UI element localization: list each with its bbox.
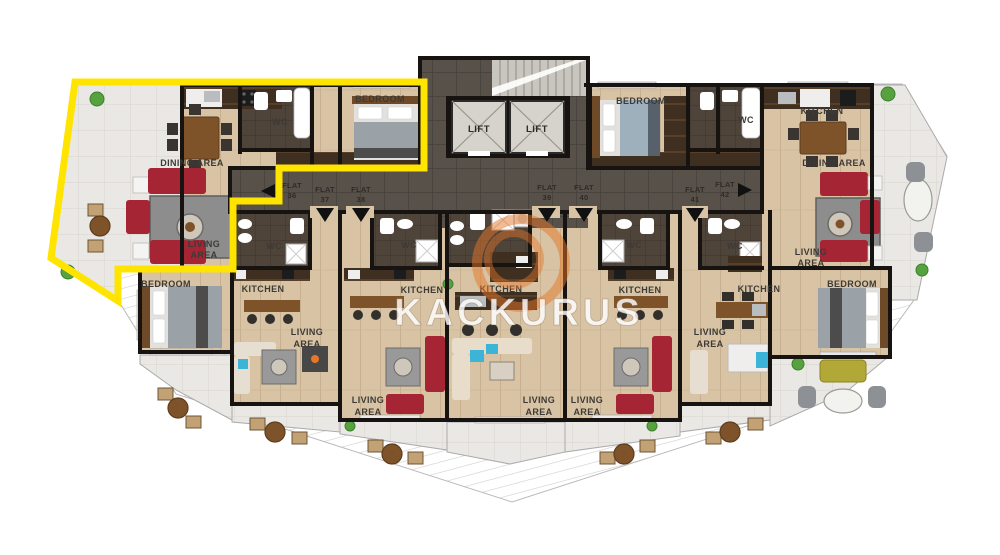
label-living-flat41-2: AREA (696, 339, 723, 349)
label-wc-flat36: WC (272, 117, 288, 127)
label-lift-right: LIFT (526, 124, 548, 135)
label-dining-flat36: DINING AREA (160, 158, 224, 168)
label-wc-flat37: WC (266, 241, 282, 251)
label-living-flat39-2: AREA (525, 407, 552, 417)
floor-plan-page: DINING AREA WC BEDROOM LIVING AREA BEDRO… (0, 0, 1000, 555)
label-living-flat39: LIVING (523, 395, 555, 405)
label-dining-flat42: DINING AREA (802, 158, 866, 168)
label-flat37-number: 37 (321, 195, 330, 204)
label-flat37-word: FLAT (315, 185, 335, 194)
lift-shaft (446, 96, 570, 158)
label-kitchen-flat42: KITCHEN (801, 106, 844, 116)
label-living-flat36-2: AREA (190, 250, 217, 260)
label-living-flat37-2: AREA (293, 339, 320, 349)
label-bedroom-flat37: BEDROOM (141, 279, 191, 289)
label-wc-flat38: WC (401, 240, 417, 250)
label-flat39-number: 39 (543, 193, 552, 202)
label-living-flat36: LIVING (188, 239, 220, 249)
label-flat42-number: 42 (721, 190, 730, 199)
label-wc-flat42: WC (738, 115, 754, 125)
label-living-flat37: LIVING (291, 327, 323, 337)
label-flat39-word: FLAT (537, 183, 557, 192)
label-flat36-word: FLAT (282, 181, 302, 190)
label-living-flat41: LIVING (694, 327, 726, 337)
label-kitchen-flat37: KITCHEN (242, 284, 285, 294)
label-living-flat40-2: AREA (573, 407, 600, 417)
stairs (492, 60, 586, 96)
label-flat36-number: 36 (288, 191, 297, 200)
label-flat41-word: FLAT (685, 185, 705, 194)
label-bedroom-top-right: BEDROOM (616, 96, 666, 106)
label-living-flat42: LIVING (795, 247, 827, 257)
watermark-brand-text: KACKURUS (394, 292, 643, 334)
label-flat42-word: FLAT (715, 180, 735, 189)
label-living-flat40: LIVING (571, 395, 603, 405)
label-living-flat38-2: AREA (354, 407, 381, 417)
label-flat41-number: 41 (691, 195, 700, 204)
label-flat40-number: 40 (580, 193, 589, 202)
label-wc-flat40: WC (626, 240, 642, 250)
label-living-flat42-2: AREA (797, 258, 824, 268)
corridor-floor (230, 168, 762, 212)
label-lift-left: LIFT (468, 124, 490, 135)
label-flat40-word: FLAT (574, 183, 594, 192)
floor-plan-svg: DINING AREA WC BEDROOM LIVING AREA BEDRO… (0, 0, 1000, 555)
label-flat38-number: 38 (357, 195, 366, 204)
label-flat38-word: FLAT (351, 185, 371, 194)
label-bedroom-flat42: BEDROOM (827, 279, 877, 289)
label-wc-flat41: WC (727, 241, 743, 251)
label-kitchen-flat41: KITCHEN (738, 284, 781, 294)
label-living-flat38: LIVING (352, 395, 384, 405)
label-bedroom-flat36: BEDROOM (355, 94, 405, 104)
